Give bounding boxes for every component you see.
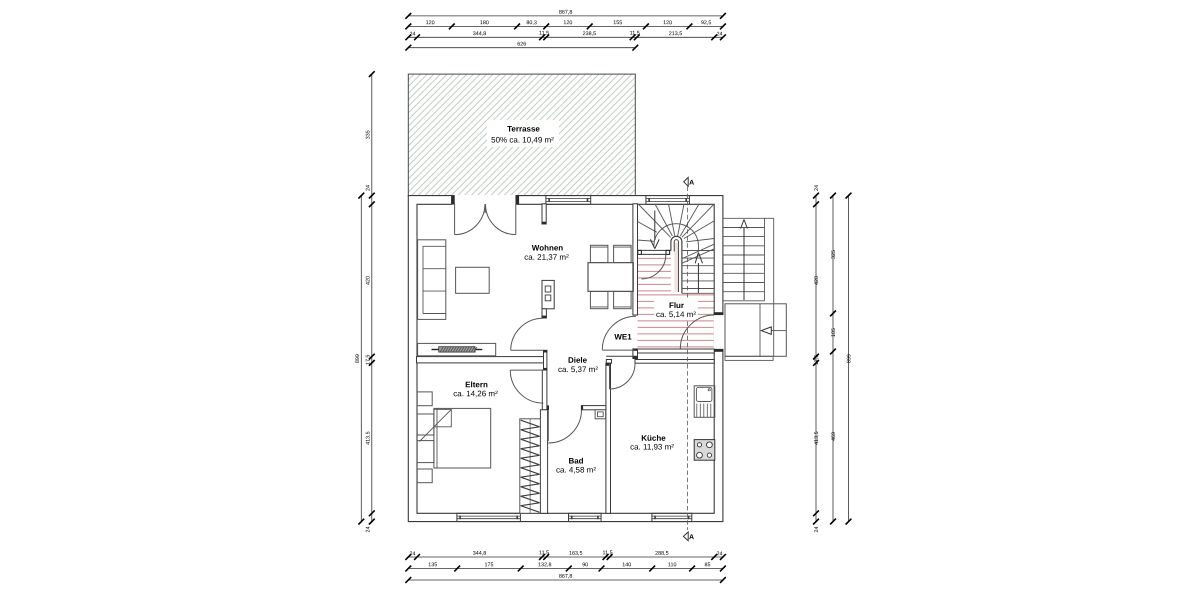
svg-text:24: 24: [409, 551, 415, 557]
svg-text:Bad: Bad: [568, 456, 583, 465]
svg-text:90: 90: [582, 562, 588, 568]
svg-text:899: 899: [847, 354, 853, 363]
svg-text:ca. 11,93 m²: ca. 11,93 m²: [630, 442, 674, 451]
svg-text:24: 24: [814, 185, 820, 191]
svg-text:ca. 21,37 m²: ca. 21,37 m²: [524, 253, 569, 262]
svg-text:17,5: 17,5: [814, 355, 820, 366]
svg-text:ca. 5,37 m²: ca. 5,37 m²: [558, 365, 598, 374]
svg-text:24: 24: [409, 31, 415, 37]
svg-text:140: 140: [622, 562, 631, 568]
svg-text:85: 85: [704, 562, 710, 568]
svg-text:110: 110: [668, 562, 677, 568]
svg-text:Diele: Diele: [568, 356, 588, 365]
svg-text:Küche: Küche: [641, 434, 666, 443]
svg-text:ca. 5,14 m²: ca. 5,14 m²: [656, 310, 696, 319]
svg-text:344,8: 344,8: [473, 31, 487, 37]
svg-text:11,5: 11,5: [630, 31, 640, 37]
svg-text:92,5: 92,5: [701, 20, 712, 26]
svg-text:17,5: 17,5: [366, 355, 372, 366]
svg-text:24: 24: [366, 527, 372, 533]
svg-text:Flur: Flur: [669, 301, 684, 310]
svg-text:469: 469: [831, 432, 837, 441]
svg-text:11,5: 11,5: [603, 550, 613, 556]
svg-text:335: 335: [366, 130, 372, 139]
svg-text:135: 135: [428, 562, 437, 568]
svg-text:Terrasse: Terrasse: [507, 124, 540, 133]
svg-text:238,5: 238,5: [583, 31, 597, 37]
svg-text:120: 120: [426, 20, 435, 26]
svg-text:24: 24: [716, 31, 722, 37]
svg-text:120: 120: [663, 20, 672, 26]
svg-text:420: 420: [366, 276, 372, 285]
svg-text:175: 175: [484, 562, 493, 568]
svg-text:413,5: 413,5: [366, 431, 372, 445]
svg-text:867,8: 867,8: [559, 574, 573, 580]
svg-text:867,8: 867,8: [559, 10, 573, 16]
svg-text:ca. 14,26 m²: ca. 14,26 m²: [453, 389, 498, 398]
svg-text:213,5: 213,5: [669, 31, 683, 37]
svg-text:WE1: WE1: [614, 332, 632, 341]
svg-text:80,3: 80,3: [526, 20, 537, 26]
svg-text:180: 180: [480, 20, 489, 26]
svg-text:132,8: 132,8: [538, 562, 552, 568]
svg-text:163,5: 163,5: [569, 551, 583, 557]
svg-text:A: A: [689, 180, 694, 187]
svg-text:899: 899: [355, 354, 361, 363]
svg-text:155: 155: [613, 20, 622, 26]
svg-text:105: 105: [831, 328, 837, 337]
svg-text:A: A: [689, 534, 694, 541]
svg-text:24: 24: [366, 185, 372, 191]
svg-text:Wohnen: Wohnen: [532, 243, 564, 252]
svg-text:Eltern: Eltern: [465, 380, 488, 389]
svg-text:ca. 4,58 m²: ca. 4,58 m²: [556, 465, 596, 474]
svg-text:288,5: 288,5: [655, 551, 669, 557]
svg-text:24: 24: [814, 527, 820, 533]
svg-text:50% ca. 10,49 m²: 50% ca. 10,49 m²: [491, 135, 554, 144]
svg-text:24: 24: [716, 551, 722, 557]
svg-text:413,5: 413,5: [814, 431, 820, 445]
svg-text:11,5: 11,5: [539, 550, 549, 556]
svg-text:11,5: 11,5: [539, 31, 549, 37]
svg-text:120: 120: [563, 20, 572, 26]
svg-text:325: 325: [831, 250, 837, 259]
svg-text:344,8: 344,8: [473, 551, 487, 557]
svg-text:420: 420: [814, 276, 820, 285]
svg-text:626: 626: [517, 41, 526, 47]
